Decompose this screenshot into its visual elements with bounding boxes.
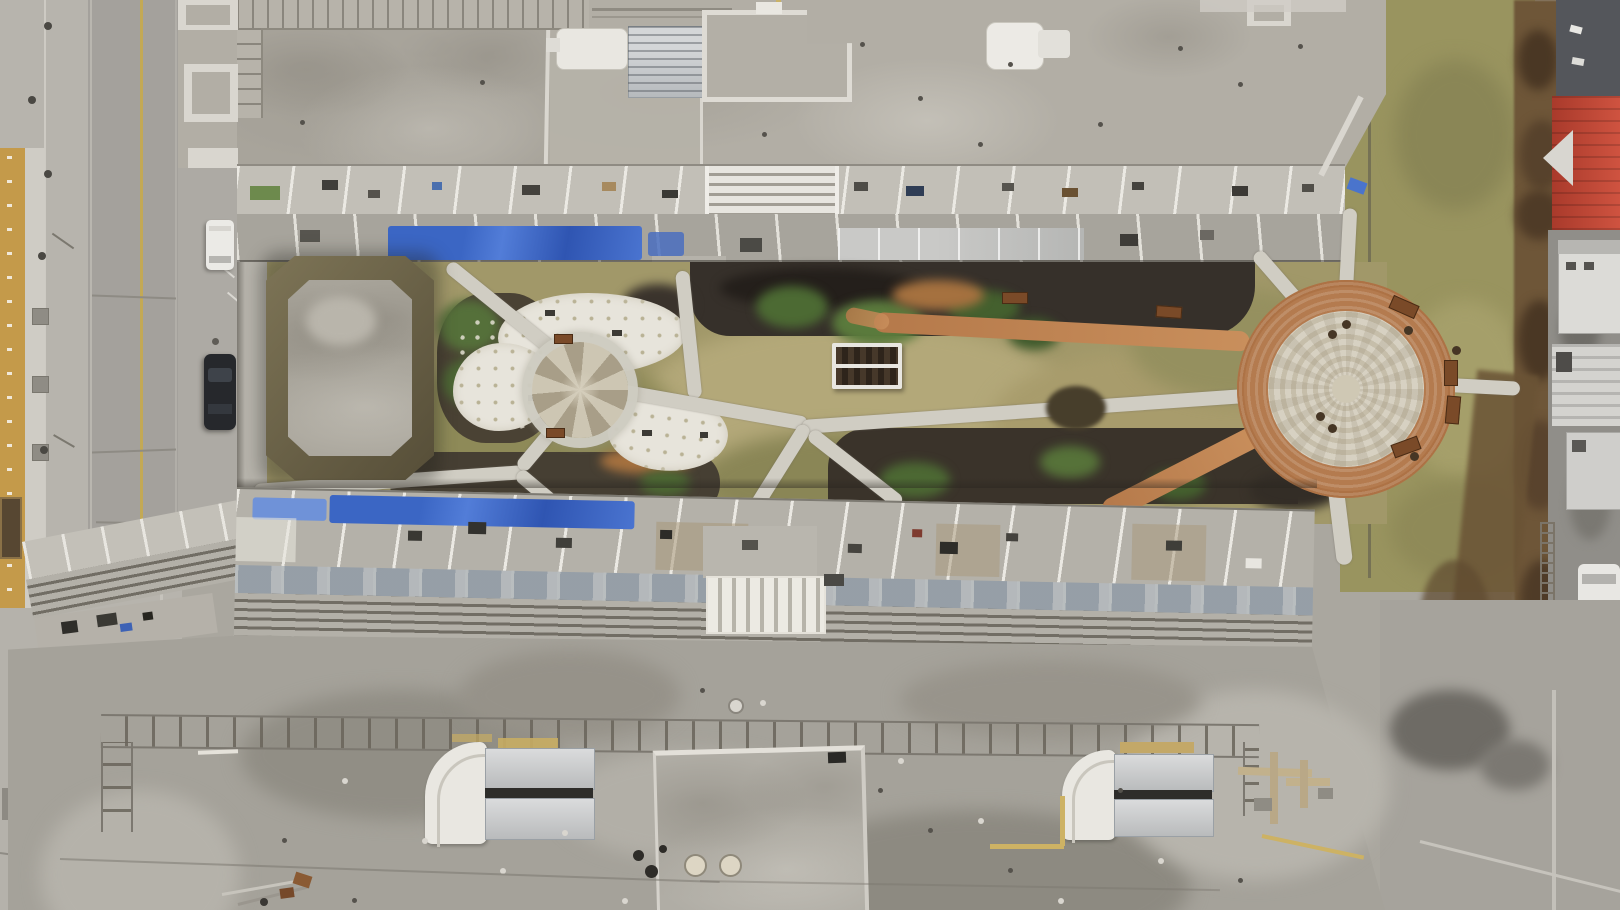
- hvac-box: [1114, 799, 1214, 837]
- pipe-rack-vertical: [101, 742, 133, 832]
- roof-speck: [1178, 46, 1183, 51]
- driveway-stain: [1480, 740, 1550, 790]
- roof-dark-item: [659, 845, 667, 853]
- terrace-item: [1302, 184, 1314, 192]
- roof-speck: [422, 838, 428, 844]
- silver-covers-dividers: [838, 228, 1084, 260]
- terrace-item: [368, 190, 380, 198]
- plaza-planter: [1452, 346, 1461, 355]
- trailer: [1558, 240, 1620, 334]
- street-pole: [44, 170, 52, 178]
- roof-speck: [1058, 898, 1064, 904]
- roof-speck: [878, 788, 883, 793]
- lawn-dark-spot: [1046, 386, 1106, 430]
- shrub: [1040, 446, 1100, 478]
- car-rear-window: [208, 404, 232, 414]
- terrace-item: [854, 182, 868, 191]
- terrace-turf-mat: [250, 186, 280, 200]
- terrace-item: [1166, 540, 1182, 550]
- terrace-item: [1002, 183, 1014, 191]
- hedge-shade: [1518, 30, 1558, 90]
- penthouse-roof-drum: [684, 854, 707, 877]
- roof-speck: [282, 838, 287, 843]
- yellow-pipe-roof: [990, 844, 1064, 849]
- balcony-item: [61, 620, 79, 634]
- black-car: [204, 354, 236, 430]
- terrace-item: [408, 531, 422, 541]
- roof-speck: [1118, 788, 1123, 793]
- roof-speck: [562, 830, 568, 836]
- plaza-bench: [1445, 395, 1461, 424]
- entrance-apron-south: [703, 526, 817, 578]
- balcony-item: [120, 622, 133, 632]
- plaza-planter: [1328, 424, 1337, 433]
- blue-tarp-small: [648, 232, 684, 256]
- parapet-ne: [1200, 0, 1346, 12]
- roof-speck: [342, 778, 348, 784]
- roof-dark-item: [645, 865, 658, 878]
- tan-pipe: [1270, 752, 1278, 824]
- tan-pipe: [1286, 778, 1330, 786]
- trailer-door: [1572, 440, 1586, 452]
- terrace-item: [468, 522, 486, 534]
- roof-speck: [898, 758, 904, 764]
- road: [88, 0, 180, 562]
- mulch-patch: [892, 280, 984, 310]
- terrace-item: [912, 529, 922, 537]
- hvac-box: [1114, 754, 1214, 792]
- terrace-item: [1132, 182, 1144, 190]
- gravel-speck: [700, 432, 708, 438]
- roof-speck: [1008, 62, 1013, 67]
- plaza-center: [1332, 375, 1360, 403]
- terrace-item: [1120, 234, 1138, 246]
- plaza-planter: [1316, 412, 1325, 421]
- spiral-center: [560, 370, 600, 410]
- plaza-planter: [1328, 330, 1337, 339]
- bench: [546, 428, 565, 438]
- terrace-item: [940, 542, 958, 554]
- hvac-yellow-frame: [498, 738, 558, 748]
- hvac-duct-east-arm: [1038, 30, 1070, 58]
- roof-dark-item: [260, 898, 268, 906]
- terrace-item: [1232, 186, 1248, 196]
- gravel-speck: [642, 430, 652, 436]
- tan-pipe: [1300, 760, 1308, 808]
- road-center-line: [140, 0, 143, 562]
- terrace-item: [602, 182, 616, 191]
- terrace-tan-floor: [1131, 524, 1206, 582]
- bench: [1002, 292, 1028, 304]
- roof-box: [1318, 788, 1333, 799]
- road-edge-line: [90, 0, 92, 562]
- roof-speck: [300, 120, 305, 125]
- roof-speck: [1298, 44, 1303, 49]
- trailer-top: [1558, 240, 1620, 254]
- terrace-item: [1006, 533, 1018, 541]
- street-pole: [28, 96, 36, 104]
- hvac-duct-east: [986, 22, 1044, 70]
- aerial-photo: Top-down aerial drone photograph of two …: [0, 0, 1620, 910]
- roof-speck: [480, 80, 485, 85]
- tan-pipe: [1120, 742, 1194, 753]
- roof-drain: [728, 698, 744, 714]
- hvac-yellow-frame: [452, 734, 492, 742]
- penthouse-roof-drum: [719, 854, 742, 877]
- trailer-window: [1566, 262, 1576, 270]
- shingle-roof: [1556, 0, 1620, 96]
- car-windshield: [208, 368, 232, 382]
- roof-speck: [760, 700, 766, 706]
- roof-speck: [928, 828, 933, 833]
- trailer-window: [1584, 262, 1594, 270]
- roof-speck: [352, 898, 357, 903]
- hvac-duct: [556, 28, 628, 70]
- plaza-planter: [1410, 452, 1419, 461]
- gravel-speck: [612, 330, 622, 336]
- terrace-item: [1062, 188, 1078, 197]
- roof-speck: [860, 42, 865, 47]
- road-edge-line: [175, 0, 177, 562]
- terrace-item: [662, 190, 678, 198]
- utility-pad: [32, 376, 49, 393]
- apron-item: [742, 540, 758, 550]
- stair-bulkhead-inner: [186, 5, 230, 25]
- pergola-slats-upper: [836, 347, 898, 364]
- roof-speck: [622, 898, 628, 904]
- terrace-item: [432, 182, 442, 190]
- manhole: [212, 338, 219, 345]
- terrace-gravel-floor: [235, 517, 296, 562]
- penthouse-box: [756, 2, 782, 14]
- penthouse-vent: [828, 752, 846, 764]
- terrace-item: [906, 186, 924, 196]
- roof-speck: [1098, 122, 1103, 127]
- balcony-item: [142, 611, 153, 620]
- parapet-walkway-vertical: [237, 28, 263, 118]
- roof-box: [1254, 798, 1272, 811]
- street-pole: [40, 446, 48, 454]
- roof-speck: [1238, 82, 1243, 87]
- street-pole: [38, 252, 46, 260]
- terrace-item: [556, 538, 572, 548]
- stair-bulkhead-inner: [192, 72, 230, 114]
- trailer-door: [1556, 352, 1572, 372]
- stair-item: [824, 574, 844, 586]
- bench: [1156, 305, 1183, 319]
- hvac-duct-tail: [546, 38, 560, 52]
- plaza-planter: [1342, 320, 1351, 329]
- hvac-gap: [1114, 790, 1212, 799]
- terrace-item: [300, 230, 320, 242]
- van-roof-line: [209, 226, 231, 231]
- terrace-item: [522, 185, 540, 195]
- roof-speck: [918, 96, 923, 101]
- rust-item: [279, 887, 294, 899]
- roof-speck: [1238, 878, 1243, 883]
- terrace-item-white: [1246, 558, 1262, 568]
- terrace-item: [1200, 230, 1214, 240]
- roof-speck: [978, 142, 983, 147]
- plaza-bench: [1444, 360, 1458, 386]
- terrace-item: [740, 238, 762, 252]
- shrub: [756, 286, 828, 328]
- terrace-item: [848, 544, 862, 553]
- roof-dark-item: [633, 850, 644, 861]
- mustard-roof-inset: [0, 497, 22, 559]
- plaza-planter: [1404, 326, 1413, 335]
- parapet-walkway: [237, 0, 589, 30]
- hvac-box: [485, 748, 595, 790]
- hvac-gap: [485, 788, 593, 798]
- hvac-box: [485, 798, 595, 840]
- yellow-pipe-roof: [1060, 796, 1065, 846]
- silver-hvac-grille: [628, 26, 710, 96]
- terrace-top-shadow: [237, 478, 1317, 488]
- street-pole: [44, 22, 52, 30]
- terrace-item: [660, 530, 672, 539]
- balcony-item: [96, 613, 117, 628]
- van-windshield: [209, 256, 231, 263]
- roof-speck: [762, 132, 767, 137]
- utility-pad: [32, 308, 49, 325]
- bench: [554, 334, 573, 344]
- roof-speck: [1158, 858, 1164, 864]
- stair-rib-roof: [706, 576, 826, 634]
- roof-speck: [978, 818, 984, 824]
- north-roof-section-west: [237, 26, 547, 168]
- stair-bulkhead: [188, 148, 238, 168]
- lawn-patch: [1395, 60, 1515, 210]
- south-penthouse: [653, 745, 869, 910]
- terrace-item: [322, 180, 338, 190]
- west-strip-shadow: [237, 262, 245, 488]
- pavilion-highlight: [306, 296, 376, 346]
- roof-speck: [1008, 868, 1013, 873]
- roof-speck: [700, 688, 705, 693]
- gravel-speck: [545, 310, 555, 316]
- pergola-slats-lower: [836, 368, 898, 385]
- white-car-windshield: [1582, 574, 1616, 584]
